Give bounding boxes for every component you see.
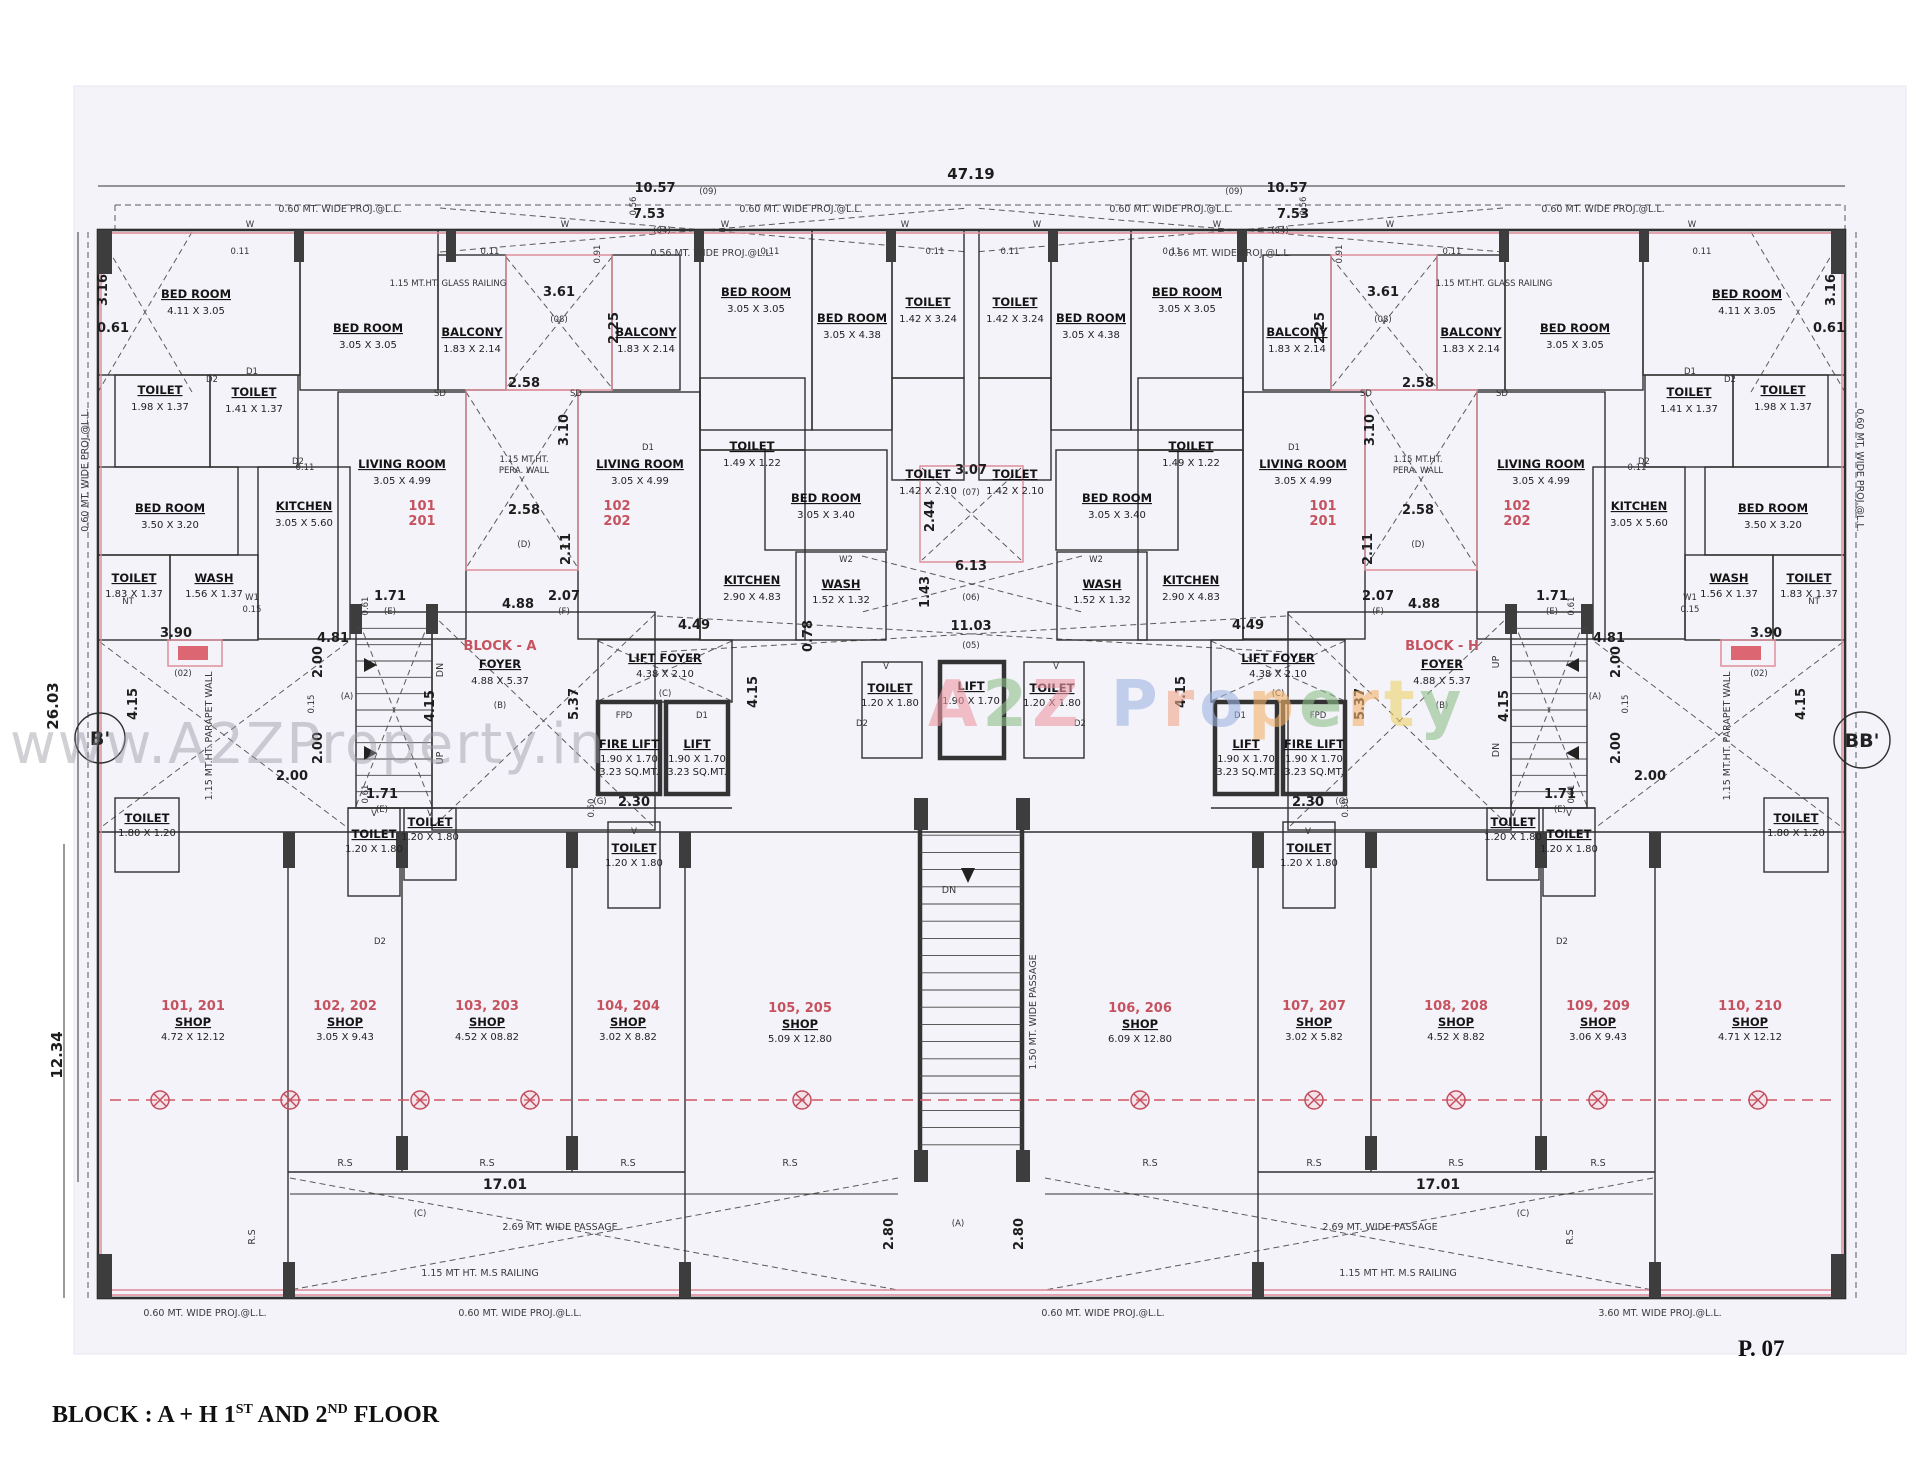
- plan-label: 0.56: [629, 197, 639, 216]
- plan-label: 110, 210: [1718, 999, 1782, 1014]
- plan-label: TOILET: [993, 295, 1038, 309]
- plan-label: W1: [245, 593, 259, 603]
- plan-label: 2.07: [548, 589, 580, 604]
- plan-label: TOILET: [730, 439, 775, 453]
- plan-label: 3.02 X 8.82: [599, 1032, 657, 1043]
- plan-label: 0.60 MT. WIDE PROJ.@L.L.: [278, 204, 401, 215]
- plan-label: 2.58: [508, 503, 540, 518]
- plan-label: D2: [206, 375, 218, 385]
- column-symbol: [411, 1091, 429, 1109]
- plan-label: 2.90 X 4.83: [1162, 592, 1220, 603]
- plan-label: 1.15 MT.HT. GLASS RAILING: [1436, 279, 1553, 289]
- plan-label: 1.98 X 1.37: [131, 402, 189, 413]
- plan-label: 1.83 X 2.14: [443, 344, 501, 355]
- plan-label: W: [1386, 220, 1395, 230]
- plan-label: V: [371, 809, 377, 819]
- plan-label: 4.49: [1232, 618, 1264, 633]
- page-number: P. 07: [1738, 1336, 1784, 1362]
- plan-label: (06): [962, 593, 979, 603]
- plan-label: 2.00: [1609, 646, 1624, 678]
- plan-label: (A): [952, 1219, 964, 1229]
- plan-label: KITCHEN: [724, 573, 781, 587]
- plan-label: 1.49 X 1.22: [723, 458, 781, 469]
- plan-label: 2.58: [1402, 503, 1434, 518]
- plan-label: 1.90 X 1.70: [600, 754, 658, 765]
- plan-label: 0.78: [801, 620, 816, 652]
- plan-label: 1.83 X 2.14: [617, 344, 675, 355]
- plan-label: 3.50 X 3.20: [141, 520, 199, 531]
- plan-label: R.S: [782, 1158, 797, 1169]
- plan-label: BED ROOM: [1712, 287, 1782, 301]
- plan-label: DN: [1491, 743, 1502, 757]
- plan-label: TOILET: [352, 827, 397, 841]
- plan-label: 47.19: [947, 165, 994, 183]
- plan-label: 102, 202: [313, 999, 377, 1014]
- plan-label: TOILET: [232, 385, 277, 399]
- plan-label: R.S: [479, 1158, 494, 1169]
- plan-label: 3.61: [1367, 285, 1399, 300]
- plan-label: 2.69 MT. WIDE PASSAGE: [502, 1222, 617, 1233]
- plan-label: 3.10: [557, 414, 572, 446]
- plan-label: BED ROOM: [1540, 321, 1610, 335]
- plan-label: 0.61: [1813, 321, 1845, 336]
- section-marker-right: BB': [1845, 730, 1880, 752]
- plan-label: SHOP: [1580, 1015, 1616, 1029]
- plan-label: 0.11: [926, 247, 945, 257]
- plan-label: SHOP: [1296, 1015, 1332, 1029]
- plan-label: KITCHEN: [1611, 499, 1668, 513]
- plan-label: TOILET: [125, 811, 170, 825]
- plan-label: TOILET: [993, 467, 1038, 481]
- plan-label: SHOP: [1122, 1017, 1158, 1031]
- brand-letter: A: [928, 668, 983, 742]
- title-superscript: ND: [328, 1402, 348, 1417]
- plan-label: (A): [341, 692, 353, 702]
- brand-letter: Z: [1032, 668, 1083, 742]
- plan-label: 3.05 X 3.40: [1088, 510, 1146, 521]
- plan-label: R.S: [247, 1229, 258, 1244]
- plan-label: 0.11: [481, 247, 500, 257]
- plan-label: SHOP: [1732, 1015, 1768, 1029]
- plan-label: D2: [1556, 937, 1568, 947]
- plan-label: 0.61: [97, 321, 129, 336]
- plan-label: 3.05 X 4.99: [611, 476, 669, 487]
- plan-label: 101: [408, 499, 435, 514]
- plan-label: 17.01: [1416, 1177, 1460, 1193]
- plan-label: 1.20 X 1.80: [861, 698, 919, 709]
- plan-label: (09): [1225, 187, 1242, 197]
- plan-label: 4.71 X 12.12: [1718, 1032, 1782, 1043]
- plan-label: W2: [1089, 555, 1103, 565]
- plan-label: TOILET: [1774, 811, 1819, 825]
- column-symbol: [281, 1091, 299, 1109]
- plan-label: (02): [1750, 669, 1767, 679]
- plan-label: 12.34: [48, 1031, 66, 1078]
- plan-label: SD: [570, 389, 582, 399]
- plan-label: D2: [374, 937, 386, 947]
- title-part: FLOOR: [348, 1402, 439, 1428]
- plan-label: FIRE LIFT: [599, 737, 659, 751]
- plan-label: 3.16: [96, 274, 111, 306]
- plan-label: KITCHEN: [276, 499, 333, 513]
- plan-label: TOILET: [868, 681, 913, 695]
- plan-label: SHOP: [327, 1015, 363, 1029]
- plan-label: 3.05 X 9.43: [316, 1032, 374, 1043]
- plan-label: 3.07: [955, 463, 987, 478]
- plan-label: (C): [659, 689, 672, 699]
- plan-label: (F): [1372, 607, 1384, 617]
- plan-label: R.S: [1590, 1158, 1605, 1169]
- plan-label: DN: [942, 885, 956, 896]
- plan-label: 3.16: [1824, 274, 1839, 306]
- plan-label: 3.05 X 4.99: [1512, 476, 1570, 487]
- plan-label: D1: [642, 443, 654, 453]
- plan-label: BALCONY: [1440, 325, 1502, 339]
- plan-label: 1.80 X 1.20: [118, 828, 176, 839]
- plan-label: 3.05 X 5.60: [1610, 518, 1668, 529]
- plan-label: 4.15: [1497, 690, 1512, 722]
- plan-label: R.S: [620, 1158, 635, 1169]
- plan-label: 0.61: [361, 785, 371, 804]
- plan-label: 1.15 MT.HT. PARAPET WALL: [1722, 671, 1733, 800]
- plan-label: 3.23 SQ.MT.: [1284, 767, 1344, 778]
- plan-label: 0.56 MT. WIDE PROJ.@L.L.: [650, 248, 773, 259]
- plan-label: 1.15 MT HT. M.S RAILING: [421, 1268, 538, 1279]
- plan-label: BALCONY: [441, 325, 503, 339]
- plan-label: R.S: [1306, 1158, 1321, 1169]
- plan-label: TOILET: [1667, 385, 1712, 399]
- red-box-right: [1731, 646, 1761, 660]
- plan-label: (02): [174, 669, 191, 679]
- plan-label: (05): [962, 641, 979, 651]
- plan-label: TOILET: [408, 815, 453, 829]
- plan-label: 4.52 X 08.82: [455, 1032, 519, 1043]
- plan-label: SHOP: [610, 1015, 646, 1029]
- plan-label: 202: [603, 514, 630, 529]
- plan-label: WASH: [1083, 577, 1122, 591]
- plan-label: 2.00: [1634, 769, 1666, 784]
- plan-label: SHOP: [175, 1015, 211, 1029]
- plan-label: 1.98 X 1.37: [1754, 402, 1812, 413]
- plan-label: 4.88: [502, 597, 534, 612]
- plan-label: W: [1213, 220, 1222, 230]
- plan-label: 6.13: [955, 559, 987, 574]
- column-symbol: [1447, 1091, 1465, 1109]
- plan-label: 0.91: [593, 245, 603, 264]
- plan-label: 0.91: [1335, 245, 1345, 264]
- plan-label: 101, 201: [161, 999, 225, 1014]
- column-symbol: [1749, 1091, 1767, 1109]
- plan-label: (08): [1374, 315, 1391, 325]
- plan-label: TOILET: [1761, 383, 1806, 397]
- plan-label: UP: [1491, 655, 1502, 668]
- plan-label: 2.44: [923, 500, 938, 532]
- plan-label: BALCONY: [615, 325, 677, 339]
- plan-label: (04): [1271, 226, 1288, 236]
- plan-label: 3.06 X 9.43: [1569, 1032, 1627, 1043]
- plan-label: BED ROOM: [135, 501, 205, 515]
- plan-label: 1.80 X 1.20: [1767, 828, 1825, 839]
- plan-label: 6.09 X 12.80: [1108, 1034, 1172, 1045]
- plan-label: 3.23 SQ.MT.: [599, 767, 659, 778]
- column-symbol: [1305, 1091, 1323, 1109]
- plan-label: 3.05 X 3.05: [339, 340, 397, 351]
- plan-label: 4.88: [1408, 597, 1440, 612]
- plan-label: W: [246, 220, 255, 230]
- plan-label: D2: [856, 719, 868, 729]
- plan-label: V: [631, 827, 637, 837]
- plan-label: 1.83 X 1.37: [1780, 589, 1838, 600]
- plan-label: 2.30: [1292, 795, 1324, 810]
- plan-label: 3.10: [1363, 414, 1378, 446]
- plan-label: 104, 204: [596, 999, 660, 1014]
- plan-label: 0.50: [1341, 799, 1351, 818]
- plan-label: 0.56: [1299, 197, 1309, 216]
- plan-label: 1.20 X 1.80: [401, 832, 459, 843]
- plan-label: SD: [1360, 389, 1372, 399]
- plan-label: 4.11 X 3.05: [167, 306, 225, 317]
- plan-label: 1.41 X 1.37: [225, 404, 283, 415]
- plan-label: 1.20 X 1.80: [1484, 832, 1542, 843]
- plan-label: 3.90: [1750, 626, 1782, 641]
- plan-label: 4.11 X 3.05: [1718, 306, 1776, 317]
- plan-label: W: [721, 220, 730, 230]
- plan-label: 0.60 MT. WIDE PROJ.@L.L.: [1541, 204, 1664, 215]
- plan-label: BED ROOM: [1738, 501, 1808, 515]
- plan-label: 1.20 X 1.80: [1280, 858, 1338, 869]
- plan-label: PERA. WALL: [499, 466, 550, 476]
- plan-label: 11.03: [950, 619, 991, 634]
- column-symbol: [521, 1091, 539, 1109]
- plan-label: TOILET: [612, 841, 657, 855]
- plan-label: 102: [603, 499, 630, 514]
- plan-label: 1.15 MT HT. M.S RAILING: [1339, 1268, 1456, 1279]
- plan-label: 10.57: [634, 181, 675, 196]
- plan-label: 4.38 X 2.10: [636, 669, 694, 680]
- plan-label: 0.11: [761, 247, 780, 257]
- plan-label: DN: [435, 663, 446, 677]
- plan-label: W: [901, 220, 910, 230]
- plan-label: W2: [839, 555, 853, 565]
- plan-label: (F): [558, 607, 570, 617]
- plan-label: 3.05 X 3.05: [727, 304, 785, 315]
- brand-letter: 2: [983, 668, 1033, 742]
- plan-label: (E): [376, 805, 388, 815]
- plan-label: V: [1305, 827, 1311, 837]
- plan-label: KITCHEN: [1163, 573, 1220, 587]
- plan-label: SHOP: [469, 1015, 505, 1029]
- watermark-url: www.A2ZProperty.in: [10, 712, 606, 777]
- plan-label: D1: [696, 711, 708, 721]
- brand-letter: p: [1248, 668, 1299, 742]
- plan-label: 0.11: [1693, 247, 1712, 257]
- plan-label: 1.20 X 1.80: [345, 844, 403, 855]
- plan-label: 4.52 X 8.82: [1427, 1032, 1485, 1043]
- plan-label: 1.83 X 2.14: [1442, 344, 1500, 355]
- plan-label: 1.20 X 1.80: [1540, 844, 1598, 855]
- plan-label: WASH: [195, 571, 234, 585]
- plan-label: 0.15: [243, 605, 262, 615]
- plan-label: (D): [517, 540, 530, 550]
- plan-label: 0.61: [1567, 597, 1577, 616]
- column-symbol: [1589, 1091, 1607, 1109]
- drawing-title: BLOCK : A + H 1ST AND 2ND FLOOR: [52, 1402, 439, 1429]
- plan-label: (A): [1589, 692, 1601, 702]
- plan-label: 0.50: [587, 799, 597, 818]
- plan-label: 3.23 SQ.MT.: [667, 767, 727, 778]
- plan-label: 1.50 MT. WIDE PASSAGE: [1028, 954, 1039, 1069]
- plan-label: FPD: [616, 711, 633, 721]
- plan-label: 1.15 MT.HT.: [499, 455, 548, 465]
- plan-label: 2.11: [559, 533, 574, 565]
- plan-label: W: [1688, 220, 1697, 230]
- plan-label: 0.60 MT. WIDE PROJ.@L.L.: [1854, 408, 1865, 531]
- plan-label: WASH: [822, 577, 861, 591]
- plan-label: PERA. WALL: [1393, 466, 1444, 476]
- plan-label: 0.60 MT. WIDE PROJ.@L.L.: [80, 408, 91, 531]
- plan-label: 4.49: [678, 618, 710, 633]
- plan-label: 1.43: [918, 576, 933, 608]
- plan-label: LIVING ROOM: [1497, 457, 1585, 471]
- plan-label: 201: [408, 514, 435, 529]
- plan-label: (07): [962, 488, 979, 498]
- red-box-left: [178, 646, 208, 660]
- plan-label: (E): [1554, 805, 1566, 815]
- plan-label: 1.71: [1536, 589, 1568, 604]
- plan-label: TOILET: [1169, 439, 1214, 453]
- plan-label: 0.11: [1443, 247, 1462, 257]
- plan-label: R.S: [1142, 1158, 1157, 1169]
- plan-label: V: [883, 662, 889, 672]
- column-symbol: [151, 1091, 169, 1109]
- plan-label: (08): [550, 315, 567, 325]
- plan-label: 10.57: [1266, 181, 1307, 196]
- plan-label: 5.09 X 12.80: [768, 1034, 832, 1045]
- plan-label: D1: [1684, 367, 1696, 377]
- brand-letter: r: [1347, 668, 1384, 742]
- brand-watermark: A2Z Property: [928, 668, 1466, 742]
- brand-letter: P: [1111, 668, 1163, 742]
- plan-label: BED ROOM: [791, 491, 861, 505]
- plan-label: 102: [1503, 499, 1530, 514]
- plan-label: 3.05 X 4.99: [1274, 476, 1332, 487]
- plan-label: 0.61: [1567, 785, 1577, 804]
- plan-label: 0.60 MT. WIDE PROJ.@L.L.: [739, 204, 862, 215]
- plan-label: BED ROOM: [817, 311, 887, 325]
- plan-label: D2: [1724, 375, 1736, 385]
- plan-label: 106, 206: [1108, 1001, 1172, 1016]
- plan-label: 1.15 MT.HT. GLASS RAILING: [390, 279, 507, 289]
- plan-label: LIFT FOYER: [628, 651, 702, 665]
- plan-label: 4.81: [1593, 631, 1625, 646]
- plan-label: LIFT FOYER: [1241, 651, 1315, 665]
- plan-label: 1.90 X 1.70: [1217, 754, 1275, 765]
- brand-letter: t: [1384, 668, 1420, 742]
- plan-label: (04): [653, 226, 670, 236]
- plan-label: 0.11: [296, 463, 315, 473]
- plan-label: 3.23 SQ.MT.: [1216, 767, 1276, 778]
- column-symbol: [793, 1091, 811, 1109]
- plan-label: 107, 207: [1282, 999, 1346, 1014]
- plan-label: R.S: [1565, 1229, 1576, 1244]
- plan-label: 105, 205: [768, 1001, 832, 1016]
- plan-label: 3.60 MT. WIDE PROJ.@L.L.: [1598, 1308, 1721, 1319]
- plan-label: 0.11: [1001, 247, 1020, 257]
- plan-label: 0.15: [307, 695, 317, 714]
- plan-label: 0.60 MT. WIDE PROJ.@L.L.: [1109, 204, 1232, 215]
- plan-label: W1: [1683, 593, 1697, 603]
- plan-label: 0.15: [1681, 605, 1700, 615]
- plan-label: 0.60 MT. WIDE PROJ.@L.L.: [143, 1308, 266, 1319]
- plan-label: 1.41 X 1.37: [1660, 404, 1718, 415]
- plan-label: 1.83 X 1.37: [105, 589, 163, 600]
- plan-label: FOYER: [479, 657, 521, 671]
- plan-label: TOILET: [906, 295, 951, 309]
- plan-label: 2.00: [311, 646, 326, 678]
- plan-label: 0.60 MT. WIDE PROJ.@L.L.: [1041, 1308, 1164, 1319]
- plan-label: BED ROOM: [161, 287, 231, 301]
- plan-label: (09): [699, 187, 716, 197]
- plan-label: R.S: [337, 1158, 352, 1169]
- plan-label: 0.11: [231, 247, 250, 257]
- plan-label: TOILET: [1547, 827, 1592, 841]
- plan-label: BLOCK - H: [1405, 639, 1479, 654]
- plan-label: BED ROOM: [1152, 285, 1222, 299]
- plan-label: 0.60 MT. WIDE PROJ.@L.L.: [458, 1308, 581, 1319]
- plan-label: 1.56 X 1.37: [1700, 589, 1758, 600]
- plan-label: BALCONY: [1266, 325, 1328, 339]
- plan-label: 1.71: [374, 589, 406, 604]
- plan-label: BLOCK - A: [464, 639, 537, 654]
- plan-label: 4.81: [317, 631, 349, 646]
- plan-label: 3.02 X 5.82: [1285, 1032, 1343, 1043]
- plan-label: LIFT: [683, 737, 710, 751]
- plan-label: 4.72 X 12.12: [161, 1032, 225, 1043]
- plan-label: BED ROOM: [1056, 311, 1126, 325]
- plan-label: 1.52 X 1.32: [1073, 595, 1131, 606]
- plan-label: 1.20 X 1.80: [605, 858, 663, 869]
- plan-label: TOILET: [906, 467, 951, 481]
- plan-label: (D): [1411, 540, 1424, 550]
- plan-label: 2.00: [1609, 732, 1624, 764]
- plan-label: 3.05 X 3.05: [1158, 304, 1216, 315]
- plan-label: R.S: [1448, 1158, 1463, 1169]
- plan-label: 3.05 X 5.60: [275, 518, 333, 529]
- plan-label: 2.80: [882, 1218, 897, 1250]
- plan-label: 0.15: [1621, 695, 1631, 714]
- plan-label: SHOP: [782, 1017, 818, 1031]
- plan-label: V: [1566, 809, 1572, 819]
- plan-label: 2.11: [1361, 533, 1376, 565]
- plan-label: 3.50 X 3.20: [1744, 520, 1802, 531]
- plan-label: 109, 209: [1566, 999, 1630, 1014]
- plan-label: SHOP: [1438, 1015, 1474, 1029]
- plan-label: BED ROOM: [333, 321, 403, 335]
- plan-label: 1.42 X 3.24: [986, 314, 1044, 325]
- plan-label: (C): [414, 1209, 427, 1219]
- plan-label: 1.15 MT.HT.: [1393, 455, 1442, 465]
- plan-label: BED ROOM: [1082, 491, 1152, 505]
- brand-letter: r: [1163, 668, 1200, 742]
- plan-label: 3.90: [160, 626, 192, 641]
- plan-label: 201: [1309, 514, 1336, 529]
- brand-letter: e: [1299, 668, 1347, 742]
- title-part: AND 2: [253, 1402, 328, 1428]
- plan-label: 0.11: [1628, 463, 1647, 473]
- brand-letter: [1083, 668, 1110, 742]
- plan-label: SD: [434, 389, 446, 399]
- plan-label: 1.52 X 1.32: [812, 595, 870, 606]
